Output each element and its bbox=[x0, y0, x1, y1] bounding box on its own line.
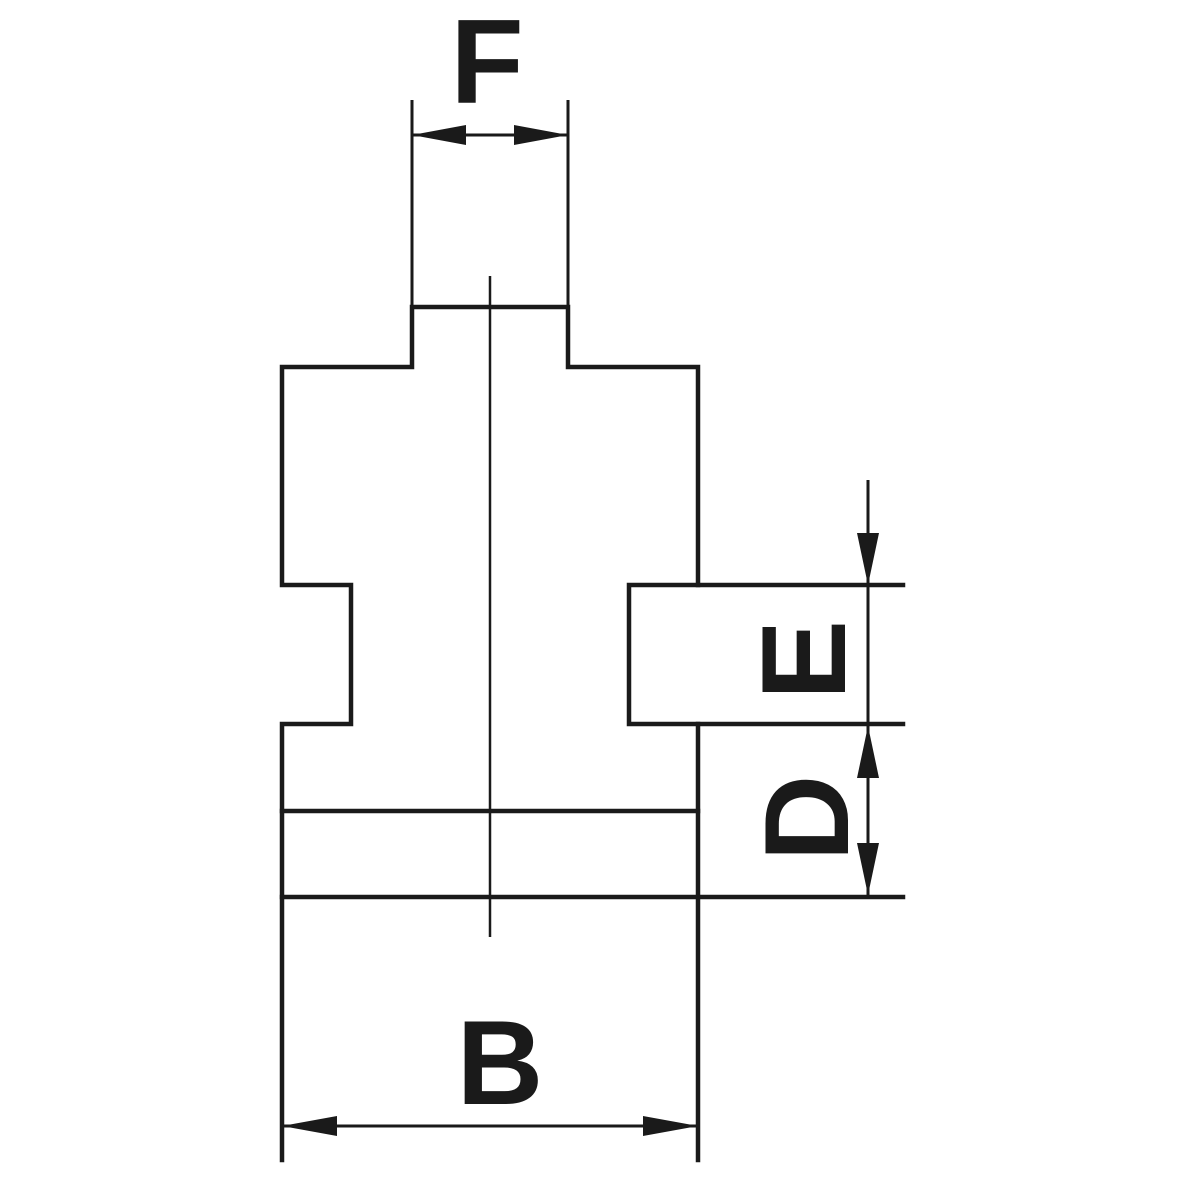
technical-drawing: F E D B bbox=[0, 0, 1200, 1200]
arrowhead-b-right bbox=[643, 1116, 698, 1136]
arrowhead-ed-middle bbox=[857, 726, 879, 778]
arrowhead-b-left bbox=[282, 1116, 337, 1136]
dimension-label-e: E bbox=[737, 620, 871, 700]
dimension-label-f: F bbox=[450, 0, 523, 129]
dimension-label-b: B bbox=[457, 996, 544, 1130]
dimension-label-d: D bbox=[740, 775, 874, 862]
drawing-canvas: F E D B bbox=[0, 0, 1200, 1200]
arrowhead-e-top bbox=[857, 533, 879, 585]
